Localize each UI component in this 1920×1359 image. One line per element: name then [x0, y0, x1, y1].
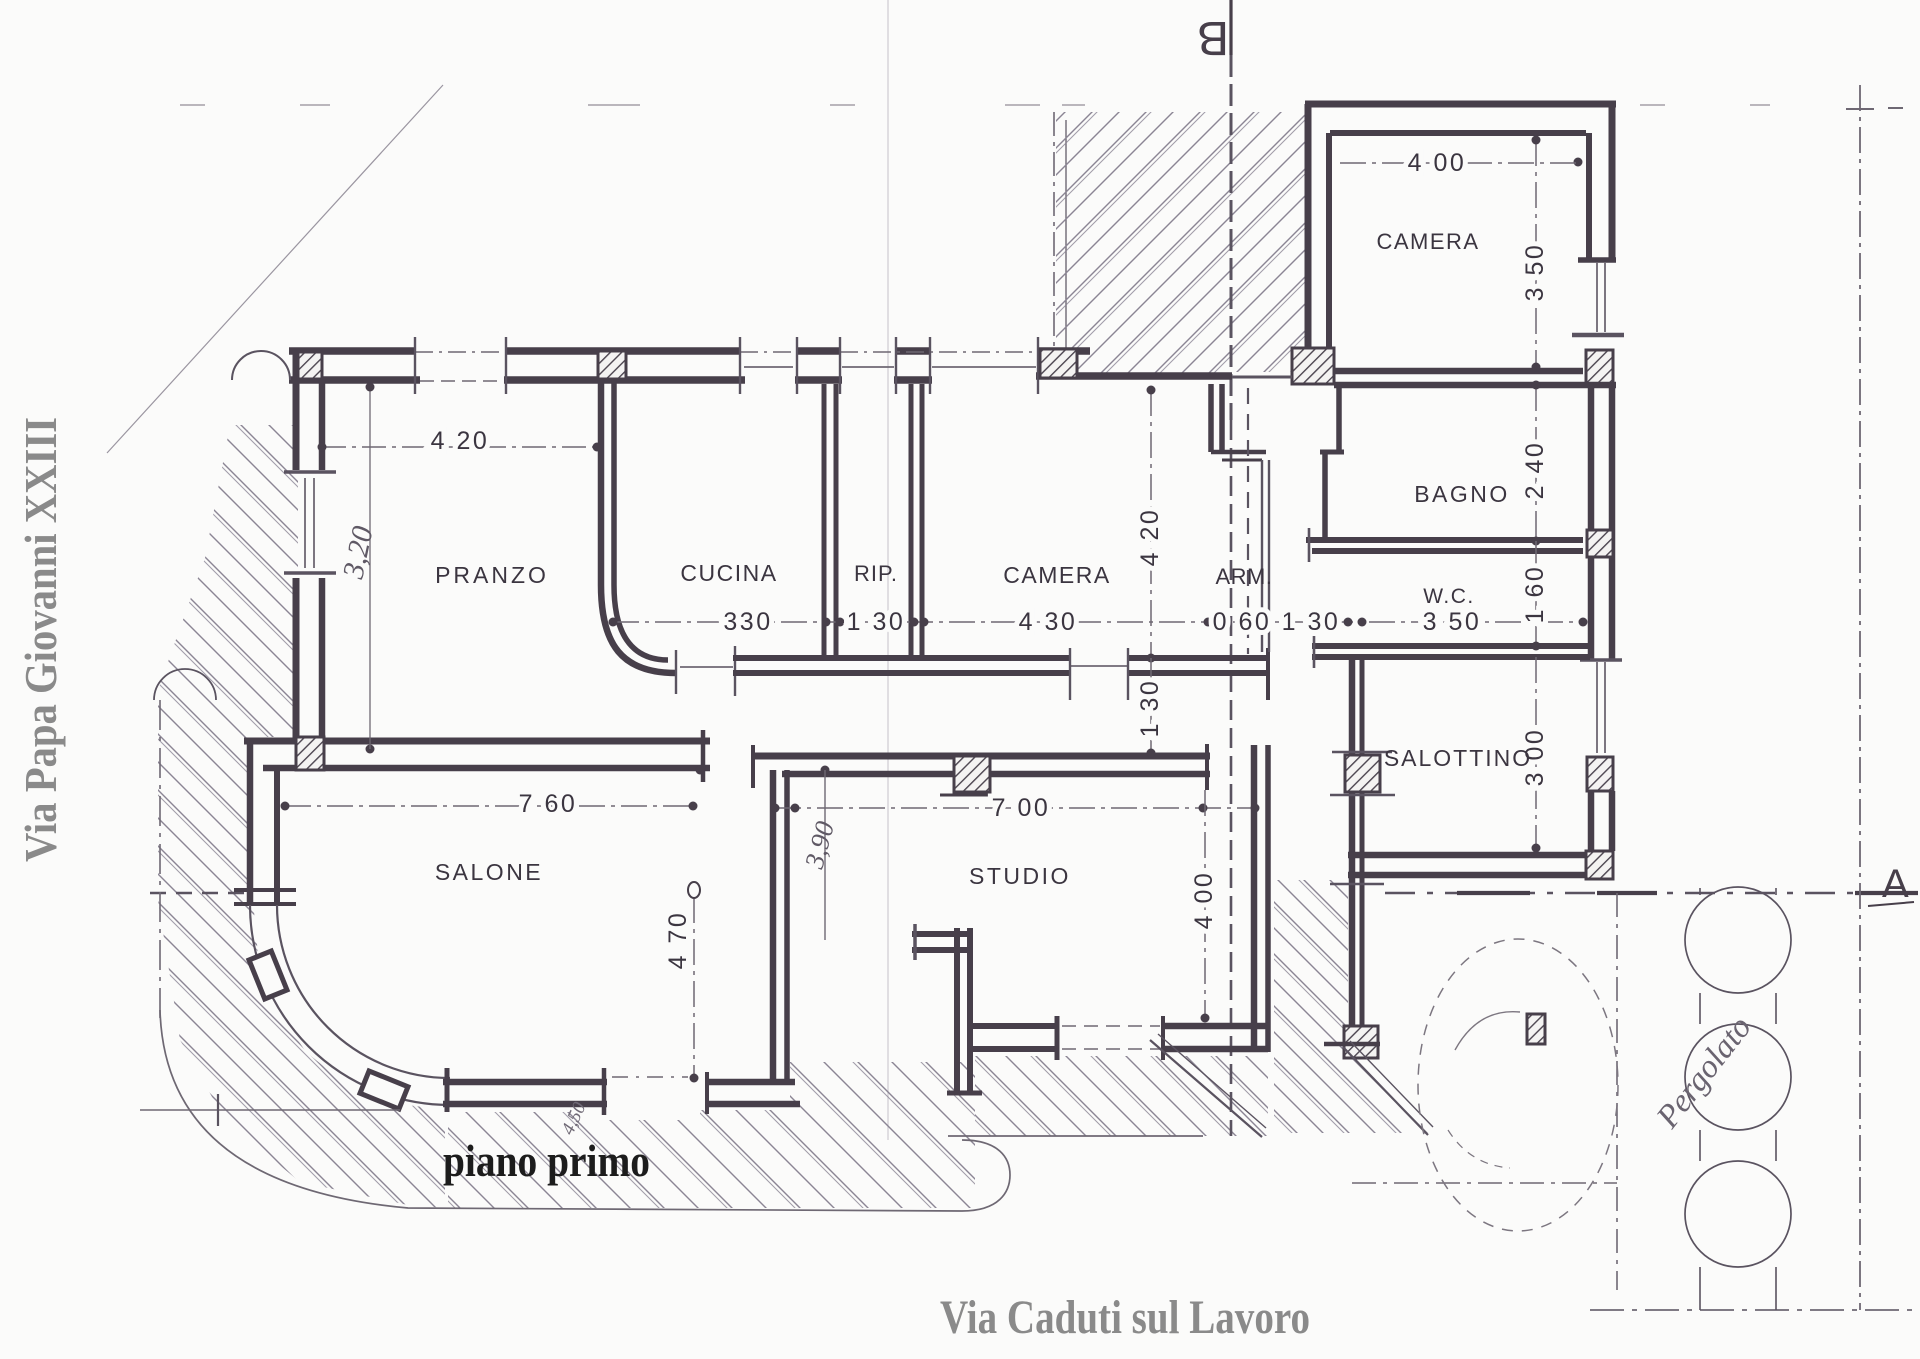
- svg-text:A: A: [1882, 862, 1909, 906]
- svg-text:3 50: 3 50: [1423, 608, 1482, 636]
- svg-text:4 70: 4 70: [664, 911, 692, 970]
- svg-text:W.C.: W.C.: [1423, 585, 1475, 608]
- svg-text:330: 330: [723, 608, 772, 636]
- svg-text:Via Caduti sul Lavoro: Via Caduti sul Lavoro: [940, 1291, 1310, 1344]
- svg-text:4 20: 4 20: [1136, 508, 1164, 567]
- svg-text:Via Papa Giovanni XXIII: Via Papa Giovanni XXIII: [15, 417, 66, 862]
- svg-text:4 30: 4 30: [1019, 608, 1078, 636]
- svg-text:CUCINA: CUCINA: [680, 560, 777, 586]
- svg-text:STUDIO: STUDIO: [969, 863, 1071, 889]
- svg-text:piano primo: piano primo: [443, 1135, 650, 1186]
- svg-text:7 60: 7 60: [519, 790, 578, 818]
- svg-text:CAMERA: CAMERA: [1376, 229, 1479, 254]
- svg-text:B: B: [1197, 11, 1229, 64]
- svg-text:PRANZO: PRANZO: [435, 562, 549, 588]
- svg-text:4 00: 4 00: [1190, 871, 1218, 930]
- svg-text:SALOTTINO: SALOTTINO: [1384, 745, 1532, 771]
- svg-text:3 50: 3 50: [1521, 243, 1549, 302]
- svg-text:4 20: 4 20: [431, 427, 490, 455]
- svg-text:BAGNO: BAGNO: [1414, 481, 1510, 507]
- svg-text:CAMERA: CAMERA: [1003, 562, 1110, 588]
- svg-text:SALONE: SALONE: [435, 859, 543, 885]
- svg-text:2 40: 2 40: [1521, 441, 1549, 500]
- svg-text:1 60: 1 60: [1521, 565, 1549, 624]
- svg-text:7 00: 7 00: [992, 794, 1051, 822]
- svg-text:ARM.: ARM.: [1216, 564, 1273, 589]
- svg-text:RIP.: RIP.: [854, 561, 898, 586]
- svg-text:0 60: 0 60: [1213, 608, 1272, 636]
- svg-text:4 00: 4 00: [1408, 149, 1467, 177]
- svg-text:1 30: 1 30: [1136, 679, 1164, 738]
- svg-text:1 30: 1 30: [847, 608, 906, 636]
- svg-text:1 30: 1 30: [1282, 608, 1341, 636]
